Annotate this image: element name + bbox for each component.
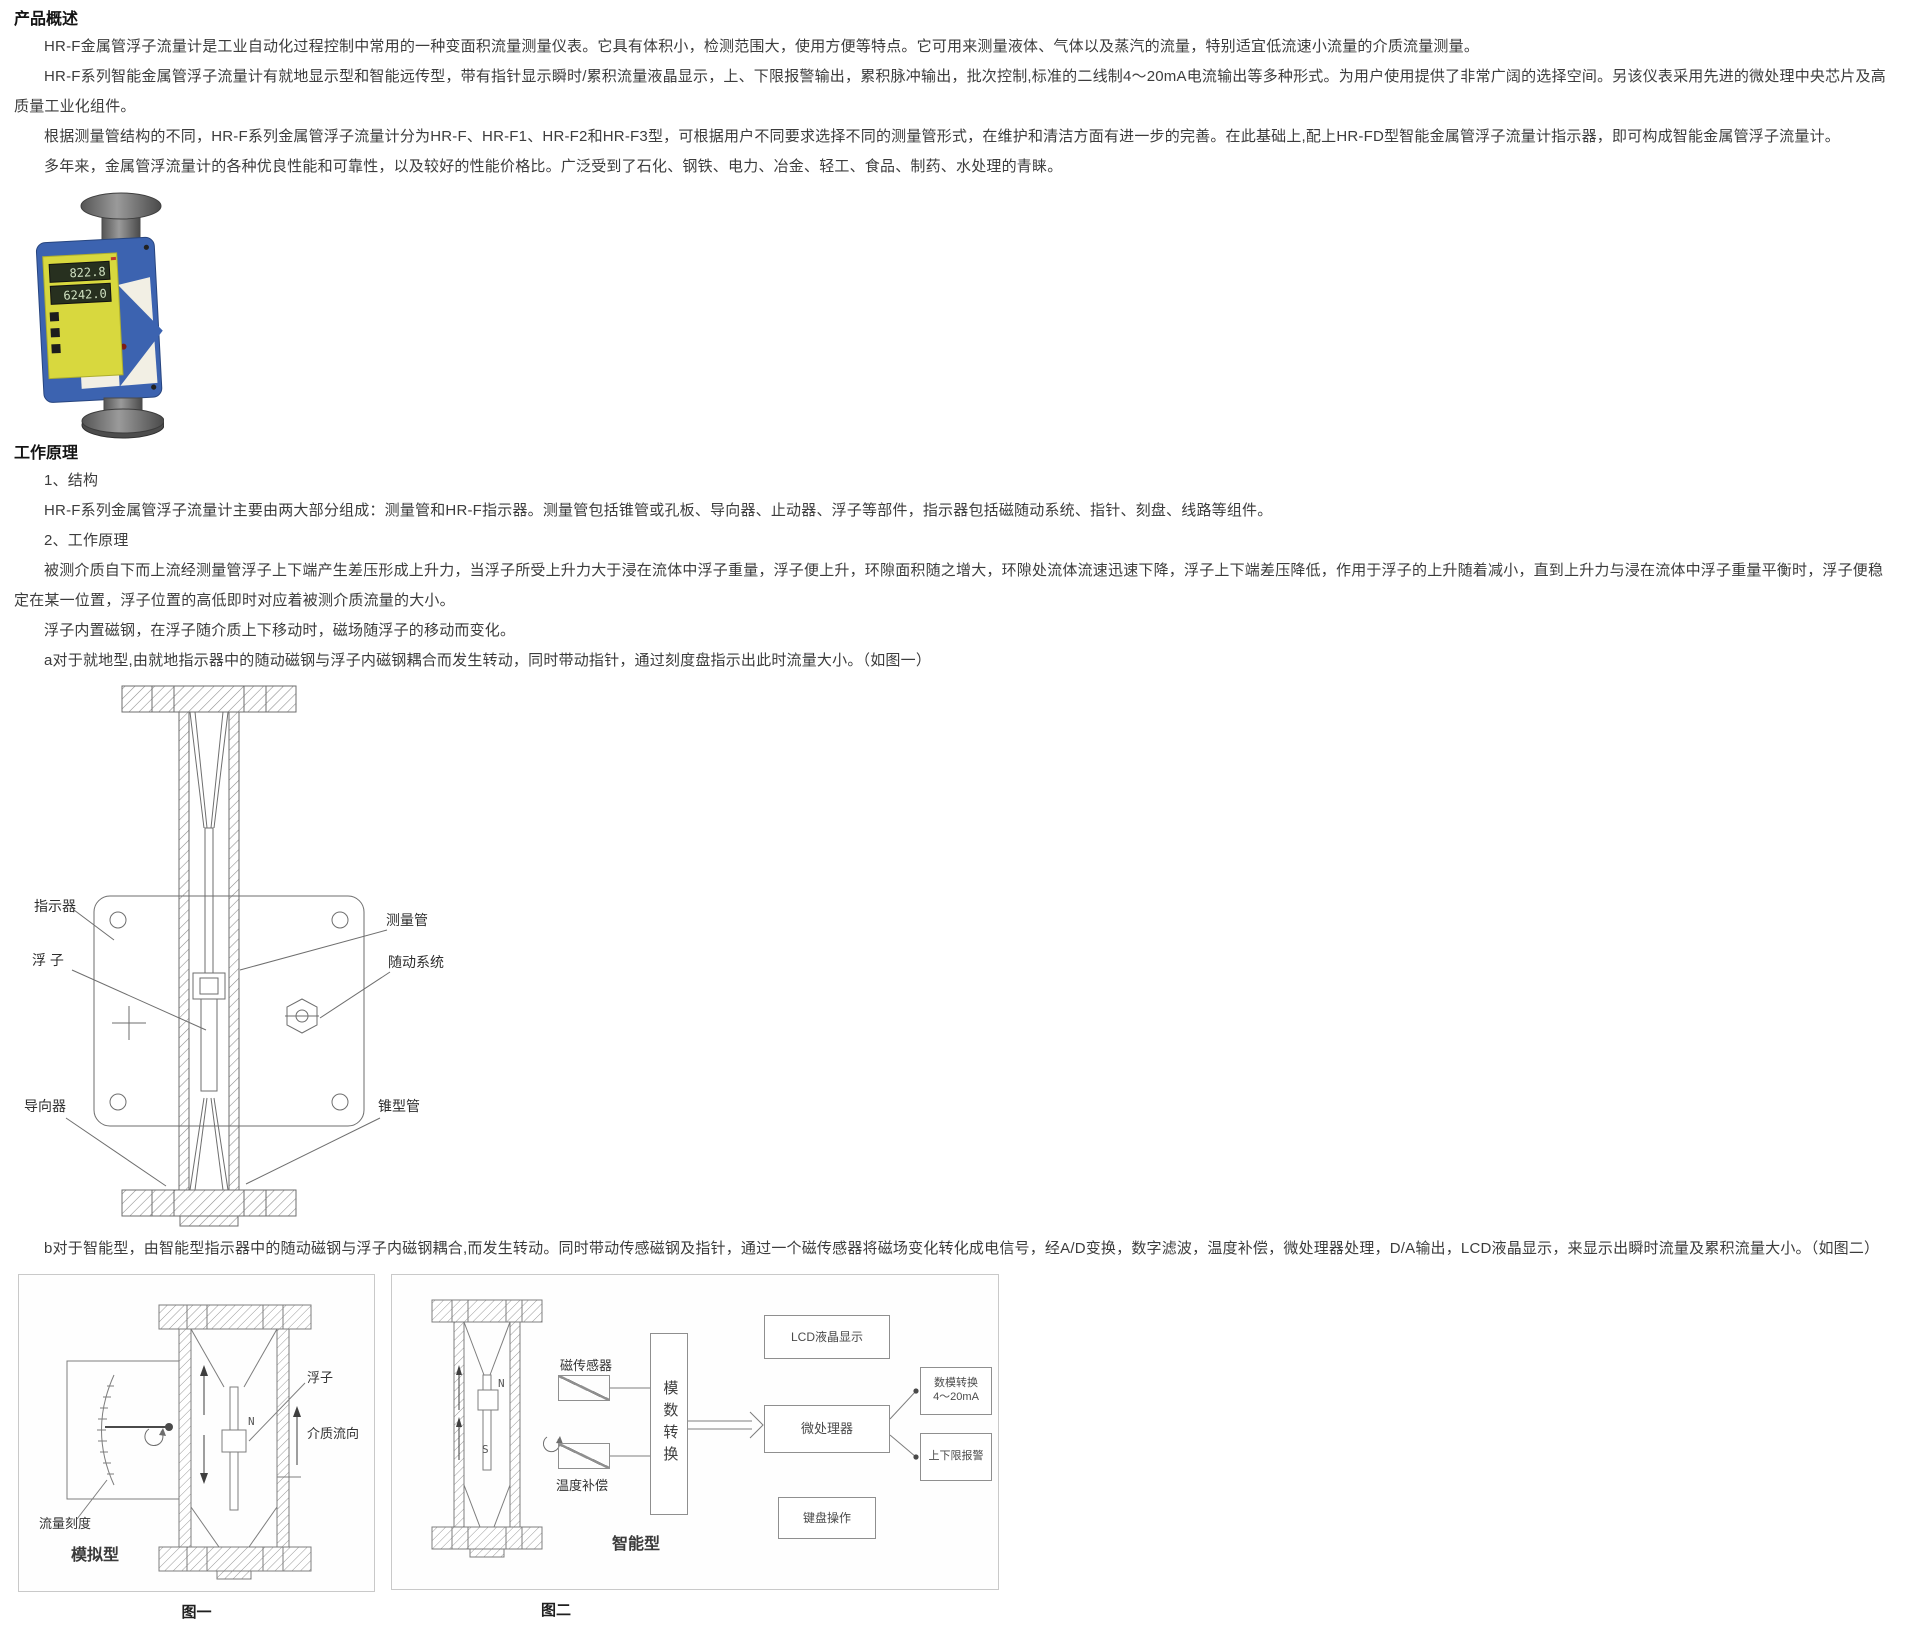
label-measuring-tube: 测量管 [386,910,428,930]
label-float: 浮 子 [32,950,64,970]
figure1-caption: 图一 [18,1601,375,1622]
figure1-float-label: 浮子 [307,1367,333,1386]
label-indicator: 指示器 [34,896,76,916]
overview-paragraph-4: 多年来，金属管浮流量计的各种优良性能和可靠性，以及较好的性能价格比。广泛受到了石… [14,152,1892,182]
magnet-text: 浮子内置磁钢，在浮子随介质上下移动时，磁场随浮子的移动而变化。 [14,616,1892,646]
dac-block-line1: 数模转换 [934,1377,978,1391]
figure2-column: N S 磁传感器 温度补偿 模数转换 LCD液晶显示 微处理器 键盘操作 数模转… [391,1274,999,1620]
lcd-line1: 822.8 [69,264,106,280]
overview-paragraph-2: HR-F系列智能金属管浮子流量计有就地显示型和智能远传型，带有指针显示瞬时/累积… [14,62,1892,122]
figure1-scale-label: 流量刻度 [39,1513,91,1532]
principle-text: 被测介质自下而上流经测量管浮子上下端产生差压形成上升力，当浮子所受上升力大于浸在… [14,556,1892,616]
flowmeter-photo-svg: 822.8 6242.0 [22,188,164,440]
structure-text: HR-F系列金属管浮子流量计主要由两大部分组成：测量管和HR-F指示器。测量管包… [14,496,1892,526]
temp-compensation-block [558,1443,610,1469]
local-type-text: a对于就地型,由就地指示器中的随动磁钢与浮子内磁钢耦合而发生转动，同时带动指针，… [14,646,1892,676]
adc-block: 模数转换 [650,1333,688,1515]
figure1-column: N 浮子 介质流向 流量刻度 模拟型 图一 [18,1274,375,1622]
panel-button-1 [50,312,59,321]
overview-heading: 产品概述 [14,8,1892,32]
adc-block-label: 模数转换 [660,1380,679,1468]
overview-paragraph-3: 根据测量管结构的不同，HR-F系列金属管浮子流量计分为HR-F、HR-F1、HR… [14,122,1892,152]
panel-button-3 [51,344,60,353]
figure1-type-label: 模拟型 [71,1541,119,1565]
product-photo: 822.8 6242.0 [22,188,164,440]
meter-body: 822.8 6242.0 [36,237,164,403]
dac-block-line2: 4～20mA [933,1391,979,1405]
principle-item-principle: 2、工作原理 [14,526,1892,556]
figure2-caption: 图二 [391,1599,999,1620]
figure2-box: N S 磁传感器 温度补偿 模数转换 LCD液晶显示 微处理器 键盘操作 数模转… [391,1274,999,1590]
figure2-s-mark: S [482,1443,489,1456]
lcd-display-block: LCD液晶显示 [764,1315,890,1359]
magnetic-sensor-block [558,1375,610,1401]
keyboard-block: 键盘操作 [778,1497,876,1539]
lcd-line2: 6242.0 [63,286,107,302]
label-follower: 随动系统 [388,952,444,972]
figure1-n-mark: N [248,1415,255,1428]
document-page: 产品概述 HR-F金属管浮子流量计是工业自动化过程控制中常用的一种变面积流量测量… [0,0,1920,1632]
label-guide: 导向器 [24,1096,66,1116]
figure2-sensor-label: 磁传感器 [560,1355,612,1374]
figure2-drawing: N S [392,1275,999,1590]
figure2-type-label: 智能型 [612,1530,660,1554]
cross-section-diagram: 指示器 浮 子 导向器 测量管 随动系统 锥型管 [14,678,484,1234]
alarm-block: 上下限报警 [920,1433,992,1481]
microprocessor-block: 微处理器 [764,1405,890,1453]
figures-row: N 浮子 介质流向 流量刻度 模拟型 图一 [18,1274,1892,1622]
overview-paragraph-1: HR-F金属管浮子流量计是工业自动化过程控制中常用的一种变面积流量测量仪表。它具… [14,32,1892,62]
label-cone-tube: 锥型管 [378,1096,420,1116]
bottom-flange [82,398,164,438]
dac-block: 数模转换 4～20mA [920,1367,992,1415]
principle-item-structure: 1、结构 [14,466,1892,496]
figure1-flow-dir-label: 介质流向 [307,1423,359,1442]
figure2-n-mark: N [498,1377,505,1390]
panel-button-2 [50,328,59,337]
smart-type-text: b对于智能型，由智能型指示器中的随动磁钢与浮子内磁钢耦合,而发生转动。同时带动传… [14,1234,1892,1264]
figure2-temp-label: 温度补偿 [556,1475,608,1494]
figure1-box: N 浮子 介质流向 流量刻度 模拟型 [18,1274,375,1592]
principle-heading: 工作原理 [14,442,1892,466]
